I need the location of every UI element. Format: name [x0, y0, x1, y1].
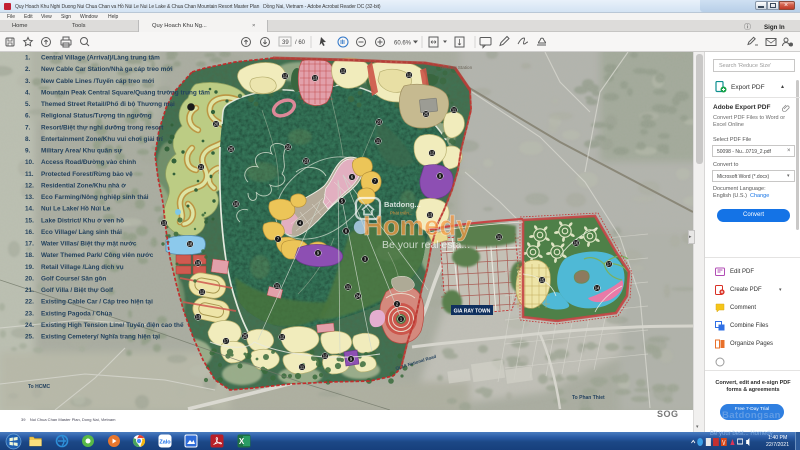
svg-text:X: X: [239, 437, 245, 446]
svg-text:Homedy: Homedy: [363, 210, 472, 241]
svg-text:12: 12: [407, 73, 412, 78]
svg-text:Nui Le Lake/ Hồ Núi Le: Nui Le Lake/ Hồ Núi Le: [41, 204, 111, 213]
svg-text:12: 12: [323, 354, 328, 359]
svg-text:24: 24: [356, 294, 361, 299]
svg-text:19.: 19.: [25, 264, 34, 271]
svg-text:25.: 25.: [25, 334, 34, 341]
svg-text:10.: 10.: [25, 159, 34, 166]
svg-text:4.: 4.: [25, 89, 31, 96]
svg-text:13: 13: [196, 315, 201, 320]
svg-text:12: 12: [341, 69, 346, 74]
svg-text:Eco Farming/Nông nghiệp sinh t: Eco Farming/Nông nghiệp sinh thái: [41, 194, 149, 201]
svg-text:Central Village (Arrival)/Làng: Central Village (Arrival)/Làng trung tâm: [41, 55, 160, 62]
svg-text:17.: 17.: [25, 241, 34, 248]
svg-text:17: 17: [224, 339, 229, 344]
svg-text:21.: 21.: [25, 287, 34, 294]
svg-text:Residential Zone/Khu nhà ở: Residential Zone/Khu nhà ở: [41, 182, 126, 189]
svg-text:23: 23: [304, 159, 309, 164]
svg-text:11: 11: [497, 235, 502, 240]
svg-text:25: 25: [229, 147, 234, 152]
svg-text:New Cable Car Station/Nhà ga c: New Cable Car Station/Nhà ga cáp treo mớ…: [41, 66, 173, 73]
svg-text:17: 17: [607, 262, 612, 267]
svg-text:Entertainment Zone/Khu vui chơ: Entertainment Zone/Khu vui chơi giải trí: [41, 136, 163, 143]
svg-text:Eco Village/ Làng sinh thái: Eco Village/ Làng sinh thái: [41, 229, 122, 236]
svg-text:8.: 8.: [25, 136, 31, 143]
svg-text:Water Villas/ Biệt thự mặt nướ: Water Villas/ Biệt thự mặt nước: [41, 241, 137, 248]
svg-text:Batdong...: Batdong...: [384, 200, 421, 209]
svg-text:21: 21: [199, 165, 204, 170]
svg-text:Gia Ray Station: Gia Ray Station: [440, 65, 473, 70]
svg-text:Water Themed Park/ Công viên n: Water Themed Park/ Công viên nước: [41, 252, 154, 259]
svg-text:16.: 16.: [25, 229, 34, 236]
svg-text:12: 12: [280, 335, 285, 340]
svg-text:To Phan Thiet: To Phan Thiet: [572, 395, 605, 401]
svg-text:16: 16: [574, 241, 579, 246]
svg-text:Existing High Tension Line/ Tu: Existing High Tension Line/ Tuyến điện c…: [41, 321, 184, 329]
svg-text:Zalo: Zalo: [159, 440, 171, 446]
svg-text:13.: 13.: [25, 194, 34, 201]
svg-text:13: 13: [313, 76, 318, 81]
svg-text:15.: 15.: [25, 217, 34, 224]
svg-text:Themed Street Retail/Phố đi bộ: Themed Street Retail/Phố đi bộ Thương mạ…: [41, 100, 175, 108]
svg-text:11.: 11.: [25, 171, 34, 178]
svg-text:Existing Cemetery/ Nghĩa trang: Existing Cemetery/ Nghĩa trang hiện tại: [41, 334, 160, 341]
svg-text:1.: 1.: [25, 55, 31, 62]
svg-text:12: 12: [283, 74, 288, 79]
svg-text:3.: 3.: [25, 78, 31, 85]
svg-text:10: 10: [234, 202, 239, 207]
svg-text:60.6%: 60.6%: [394, 41, 412, 47]
svg-text:Access Road/Đường vào chính: Access Road/Đường vào chính: [41, 159, 136, 166]
svg-text:11: 11: [300, 365, 305, 370]
svg-text:13: 13: [162, 221, 167, 226]
svg-text:22.: 22.: [25, 299, 34, 306]
svg-text:Military Area/ Khu quân sự: Military Area/ Khu quân sự: [41, 148, 122, 155]
svg-text:Retail Village /Làng dịch vụ: Retail Village /Làng dịch vụ: [41, 264, 124, 271]
svg-text:18.: 18.: [25, 252, 34, 259]
svg-text:18: 18: [188, 242, 193, 247]
svg-text:2.: 2.: [25, 66, 31, 73]
svg-text:14: 14: [595, 286, 600, 291]
svg-text:Protected Forest/Rừng bảo vệ: Protected Forest/Rừng bảo vệ: [41, 171, 133, 178]
svg-text:Be your real esta...: Be your real esta...: [382, 239, 470, 251]
svg-text:11: 11: [376, 139, 381, 144]
svg-text:Mountain Peak Central Square/Q: Mountain Peak Central Square/Quảng trườn…: [41, 89, 210, 96]
svg-text:19: 19: [196, 261, 201, 266]
svg-text:7.: 7.: [25, 124, 31, 131]
svg-text:15: 15: [540, 278, 545, 283]
svg-text:11: 11: [346, 285, 351, 290]
svg-text:Lake District/ Khu ở ven hồ: Lake District/ Khu ở ven hồ: [41, 215, 124, 224]
svg-text:To HCMC: To HCMC: [28, 384, 51, 390]
svg-text:/ 60: / 60: [295, 40, 306, 46]
svg-text:12.: 12.: [25, 182, 34, 189]
svg-text:Religional Status/Tượng tín ng: Religional Status/Tượng tín ngưỡng: [41, 113, 152, 120]
svg-text:14.: 14.: [25, 206, 34, 213]
svg-text:12: 12: [200, 290, 205, 295]
svg-text:Existing Pagoda / Chùa: Existing Pagoda / Chùa: [41, 310, 112, 317]
svg-text:Golf Course/ Sân gôn: Golf Course/ Sân gôn: [41, 276, 106, 283]
svg-text:20.: 20.: [25, 276, 34, 283]
svg-text:New Cable Lines /Tuyến cáp tre: New Cable Lines /Tuyến cáp treo mới: [41, 77, 154, 85]
svg-text:24.: 24.: [25, 322, 34, 329]
svg-text:22: 22: [286, 145, 291, 150]
svg-text:20: 20: [214, 122, 219, 127]
svg-text:11: 11: [452, 108, 457, 113]
svg-text:9.: 9.: [25, 148, 31, 155]
svg-text:23.: 23.: [25, 310, 34, 317]
svg-text:12: 12: [430, 151, 435, 156]
svg-text:Resort/Biệt thự nghỉ dưỡng tro: Resort/Biệt thự nghỉ dưỡng trong resort: [41, 124, 164, 131]
svg-text:23: 23: [377, 120, 382, 125]
svg-text:Existing Cable Car / Cáp treo: Existing Cable Car / Cáp treo hiện tại: [41, 299, 153, 306]
svg-text:11: 11: [275, 284, 280, 289]
svg-text:GIA RAY TOWN: GIA RAY TOWN: [454, 309, 491, 315]
svg-text:6.: 6.: [25, 113, 31, 120]
svg-text:Golf Villa / Biệt thự Golf: Golf Villa / Biệt thự Golf: [41, 287, 114, 294]
svg-text:25: 25: [424, 112, 429, 117]
svg-text:5.: 5.: [25, 101, 31, 108]
svg-text:25: 25: [243, 334, 248, 339]
svg-text:39: 39: [282, 40, 289, 46]
